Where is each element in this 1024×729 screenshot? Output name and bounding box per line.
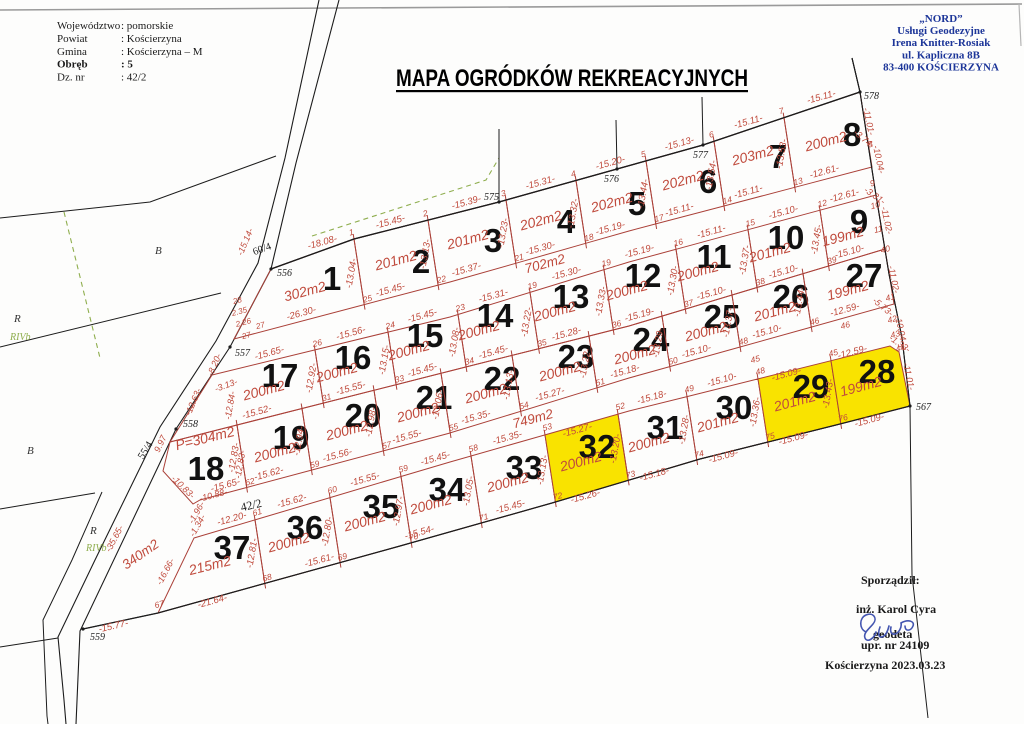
svg-text:83-400 KOŚCIERZYNA: 83-400 KOŚCIERZYNA [883, 61, 999, 73]
svg-text:576: 576 [604, 174, 619, 185]
svg-text:Gmina: Gmina [57, 46, 87, 58]
svg-text:: Kościerzyna: : Kościerzyna [121, 33, 182, 45]
svg-text:Kościerzyna 2023.03.23: Kościerzyna 2023.03.23 [825, 658, 945, 672]
svg-text:B: B [27, 445, 34, 457]
svg-text:Usługi Geodezyjne: Usługi Geodezyjne [897, 25, 985, 37]
svg-text:: pomorskie: : pomorskie [121, 20, 173, 32]
svg-text:RIVb: RIVb [85, 543, 107, 554]
svg-text:Powiat: Powiat [57, 33, 88, 45]
svg-text:Irena Knitter-Rosiak: Irena Knitter-Rosiak [892, 37, 992, 49]
svg-text:558: 558 [183, 419, 198, 430]
svg-text:upr. nr 24109: upr. nr 24109 [861, 638, 929, 652]
svg-text:: 42/2: : 42/2 [121, 72, 146, 84]
svg-text:„NORD”: „NORD” [919, 13, 962, 25]
svg-text:578: 578 [864, 91, 879, 102]
svg-text:: 5: : 5 [121, 59, 133, 71]
svg-text:567: 567 [916, 402, 932, 413]
svg-text:R: R [89, 525, 97, 537]
svg-text:559: 559 [90, 632, 105, 643]
svg-text:R: R [13, 313, 21, 325]
svg-text:Sporządził:: Sporządził: [861, 573, 920, 587]
svg-text:MAPA OGRÓDKÓW REKREACYJNYCH: MAPA OGRÓDKÓW REKREACYJNYCH [396, 64, 748, 92]
svg-text:556: 556 [277, 268, 292, 279]
svg-text:557: 557 [235, 348, 251, 359]
svg-text:577: 577 [693, 150, 709, 161]
svg-text:Województwo: Województwo [57, 20, 121, 32]
svg-text:Dz. nr: Dz. nr [57, 72, 85, 84]
svg-text:RIVb: RIVb [9, 332, 31, 343]
svg-text:: Kościerzyna – M: : Kościerzyna – M [121, 46, 203, 58]
svg-text:B: B [155, 245, 162, 257]
svg-text:ul. Kapliczna 8B: ul. Kapliczna 8B [902, 49, 981, 61]
svg-text:575: 575 [484, 192, 499, 203]
svg-text:Obręb: Obręb [57, 59, 88, 71]
